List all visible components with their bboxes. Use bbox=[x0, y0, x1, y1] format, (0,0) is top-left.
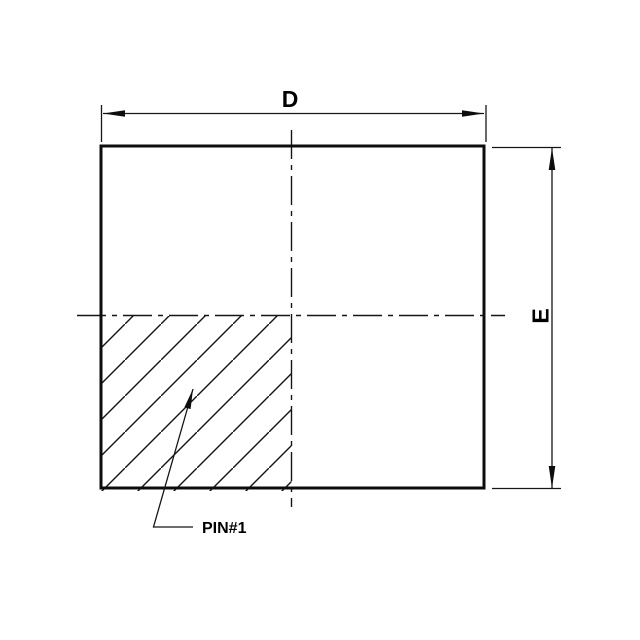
drawing-canvas: D E PIN#1 bbox=[0, 0, 640, 640]
e-arrowhead-bottom bbox=[549, 466, 556, 488]
pin1-label: PIN#1 bbox=[202, 520, 247, 537]
package-outline-drawing: D E PIN#1 bbox=[0, 0, 640, 640]
d-dimension-label: D bbox=[282, 86, 299, 112]
pin1-hatch-region bbox=[101, 316, 292, 491]
e-arrowhead-top bbox=[549, 148, 556, 170]
dimension-e: E bbox=[492, 148, 561, 489]
dimension-d: D bbox=[102, 86, 487, 142]
d-arrowhead-left bbox=[103, 110, 125, 117]
e-dimension-label: E bbox=[528, 308, 554, 323]
d-arrowhead-right bbox=[462, 110, 484, 117]
